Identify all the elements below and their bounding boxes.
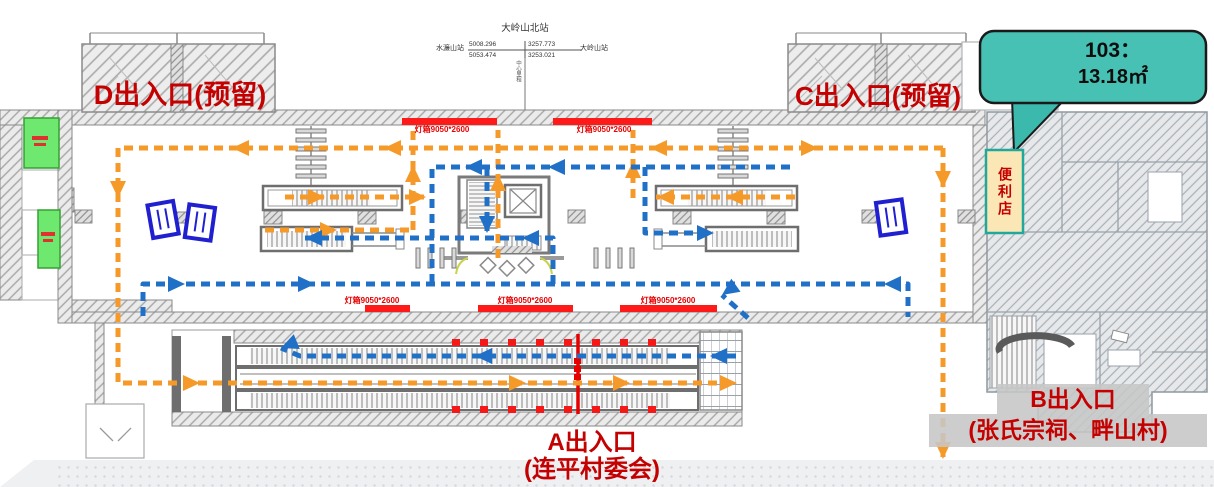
chainage-bottom-left: 5053.474 [469,52,523,59]
entrance-d-label: D出入口(预留) [84,73,276,112]
entrance-a-label: A出入口 (连平村委会) [472,429,712,483]
next-station: 大岭山站 [580,45,610,52]
entrance-b-label-line2: (张氏宗祠、畔山村) [929,414,1207,447]
entrance-c-label: C出入口(预留) [779,76,977,113]
prev-station: 水濂山站 [436,45,466,52]
chainage-top-right: 3257.773 [528,41,582,48]
chainage-bottom-right: 3253.021 [528,52,582,59]
ad-label-bottom-1: 灯箱9050*2600 [337,296,407,305]
entrance-a-line1: A出入口 [472,429,712,456]
callout-room-no: 103： [1020,38,1206,64]
ad-label-bottom-2: 灯箱9050*2600 [490,296,560,305]
central-core [444,177,564,276]
center-mileage-note: 中心里程 [515,60,521,104]
ad-label-top-1: 灯箱9050*2600 [407,125,477,134]
entrance-a-corridor [172,330,742,426]
ad-label-bottom-3: 灯箱9050*2600 [633,296,703,305]
ad-label-top-2: 灯箱9050*2600 [569,125,639,134]
callout-area: 13.18㎡ [1020,64,1206,90]
convenience-store-label: 便利店 [987,154,1023,230]
chainage-top-left: 5008.296 [469,41,523,48]
callout-text: 103： 13.18㎡ [1020,38,1206,90]
entrance-b-label-line1: B出入口 [997,384,1149,414]
station-name: 大岭山北站 [488,25,562,32]
entrance-a-line2: (连平村委会) [472,456,712,483]
gate-cluster-right [594,248,634,268]
